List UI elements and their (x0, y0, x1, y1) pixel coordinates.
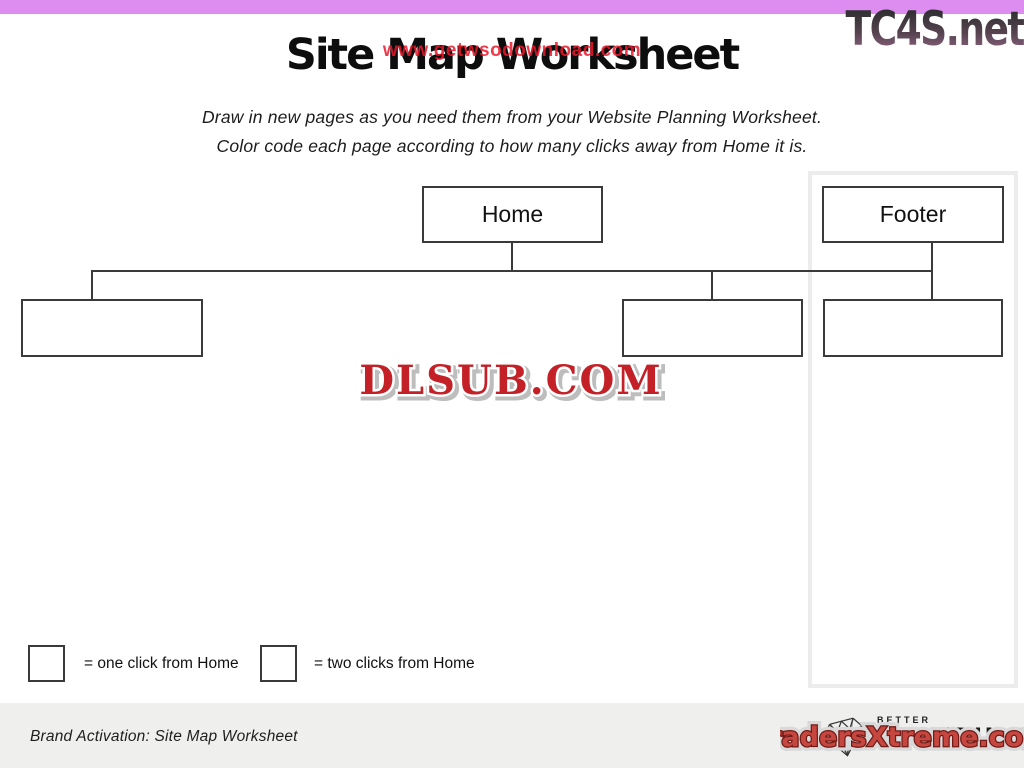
legend-two-clicks-label: = two clicks from Home (314, 655, 475, 673)
sitemap-node-footer-label: Footer (880, 201, 946, 228)
sitemap-node-empty-2 (622, 299, 803, 357)
sitemap-node-home-label: Home (482, 201, 543, 228)
sitemap-node-empty-1 (21, 299, 203, 357)
instructions-line-1: Draw in new pages as you need them from … (0, 103, 1024, 132)
legend-two-clicks-swatch (260, 645, 297, 682)
watermark-dlsub-text: DLSUB.COM (360, 357, 663, 404)
footer-caption: Brand Activation: Site Map Worksheet (30, 728, 298, 746)
footer-column-panel (808, 171, 1018, 688)
connector-child1-down (91, 272, 93, 299)
watermark-dlsub: DLSUB.COM DLSUB.COM (360, 353, 665, 408)
legend-one-click-label: = one click from Home (84, 655, 239, 673)
sitemap-node-home: Home (422, 186, 603, 243)
watermark-tradersxtreme-text: TradersXtreme.com (780, 722, 1024, 753)
worksheet-page: Site Map Worksheet www.getwsodownload.co… (0, 0, 1024, 768)
instructions-line-2: Color code each page according to how ma… (0, 132, 1024, 161)
connector-home-down (511, 243, 513, 271)
connector-footer-down (931, 243, 933, 299)
instructions-text: Draw in new pages as you need them from … (0, 103, 1024, 160)
connector-child2-down (711, 272, 713, 299)
watermark-tradersxtreme: TradersXtreme.com TradersXtreme.com (780, 710, 1024, 762)
watermark-tc4s: TC4S.net (846, 2, 1024, 57)
legend-one-click-swatch (28, 645, 65, 682)
sitemap-node-empty-3 (823, 299, 1003, 357)
connector-horizontal (91, 270, 933, 272)
sitemap-node-footer: Footer (822, 186, 1004, 243)
